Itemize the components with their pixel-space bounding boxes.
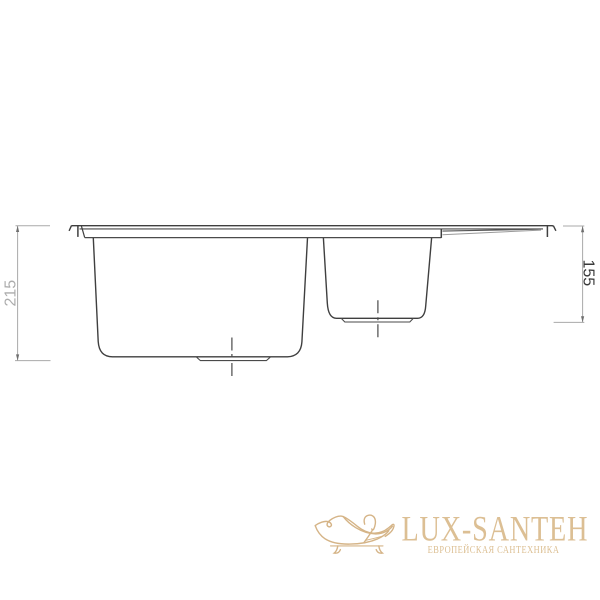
svg-text:155: 155	[580, 259, 597, 286]
svg-text:ЕВРОПЕЙСКАЯ САНТЕХНИКА: ЕВРОПЕЙСКАЯ САНТЕХНИКА	[428, 543, 560, 556]
svg-text:215: 215	[2, 280, 19, 307]
svg-text:LUX-SANTEH: LUX-SANTEH	[402, 509, 589, 549]
